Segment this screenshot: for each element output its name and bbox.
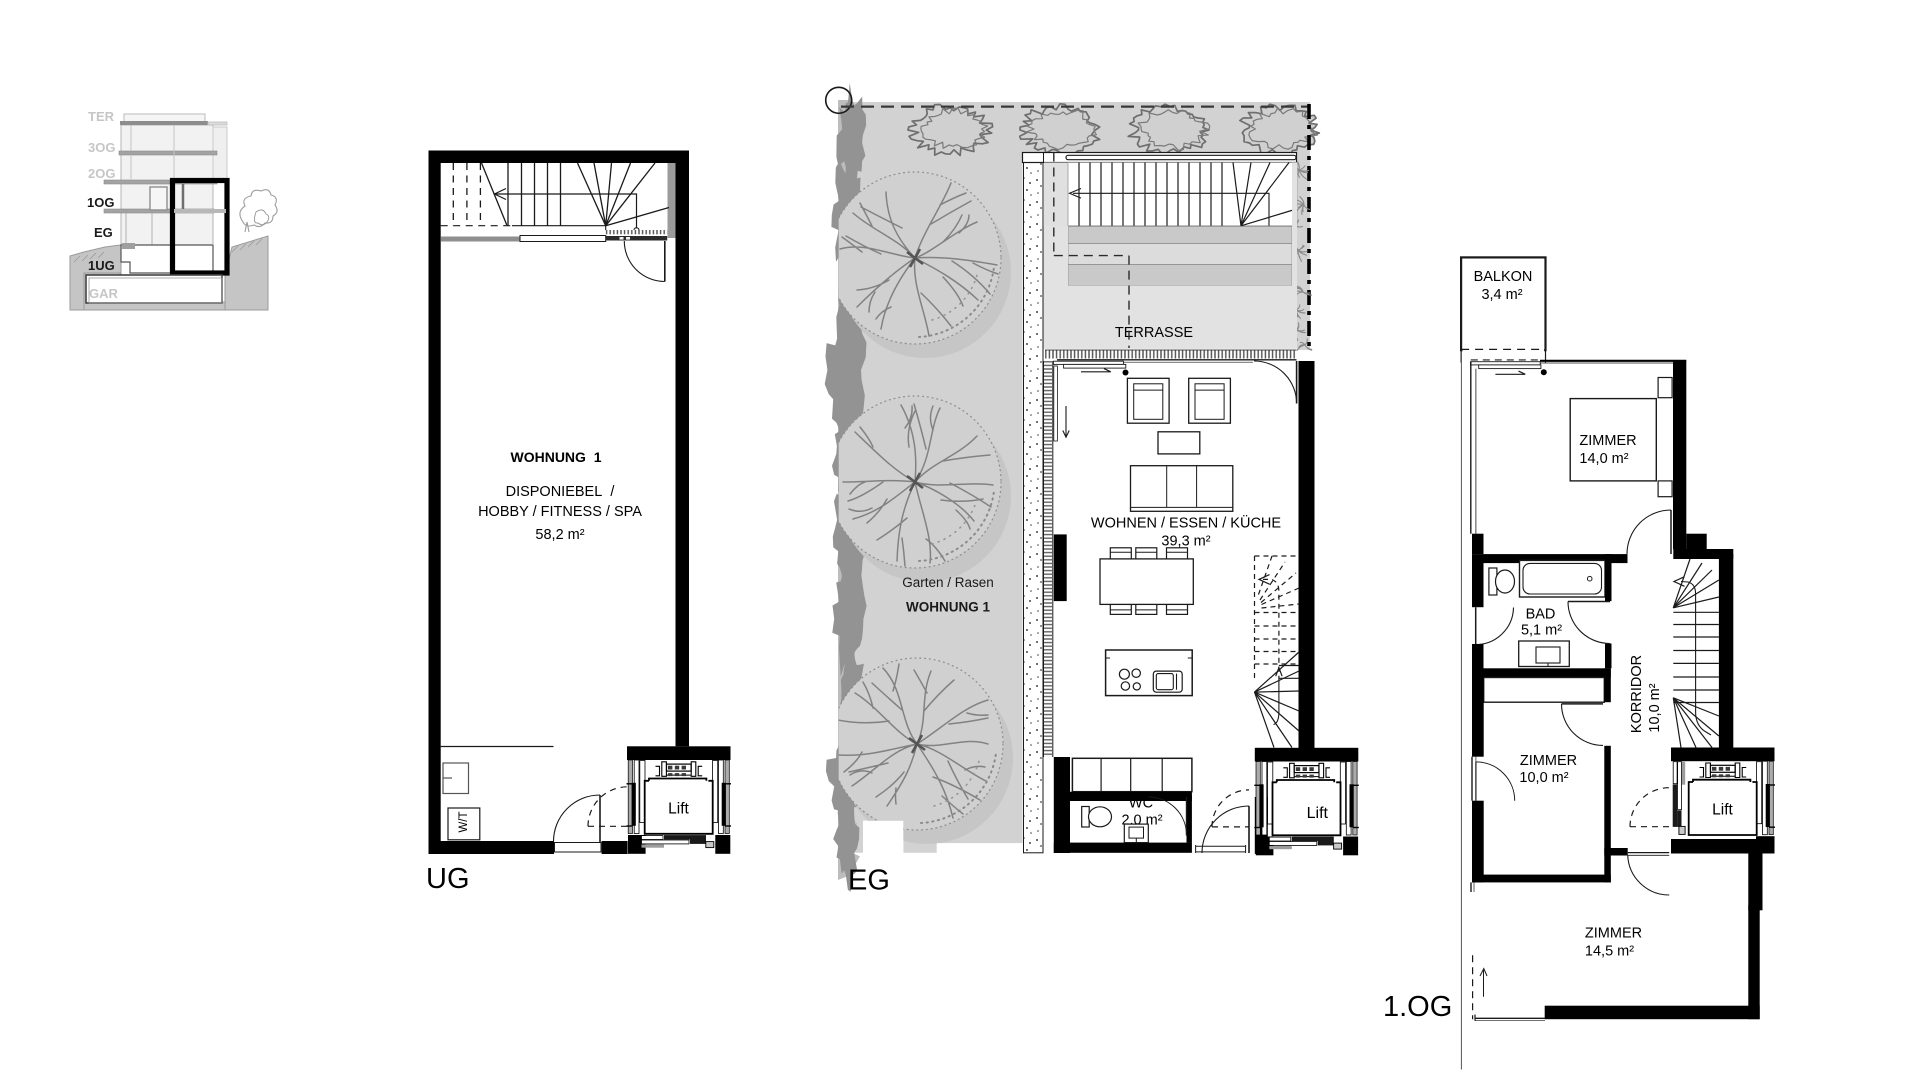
svg-text:DISPONIEBEL /: DISPONIEBEL / (506, 484, 616, 500)
svg-text:39,3 m²: 39,3 m² (1161, 534, 1210, 550)
svg-text:ZIMMER: ZIMMER (1579, 433, 1636, 449)
svg-text:10,0 m²: 10,0 m² (1519, 770, 1568, 786)
svg-text:HOBBY / FITNESS / SPA: HOBBY / FITNESS / SPA (478, 504, 642, 520)
svg-text:58,2 m²: 58,2 m² (535, 527, 584, 543)
svg-text:5,1 m²: 5,1 m² (1521, 623, 1562, 639)
svg-text:ZIMMER: ZIMMER (1585, 926, 1642, 942)
svg-text:WOHNUNG 1: WOHNUNG 1 (511, 449, 602, 465)
svg-text:W/T: W/T (458, 811, 470, 832)
svg-text:1OG: 1OG (87, 195, 114, 210)
svg-text:EG: EG (848, 865, 890, 897)
svg-text:10,0 m²: 10,0 m² (1647, 683, 1663, 732)
svg-text:ZIMMER: ZIMMER (1520, 753, 1577, 769)
svg-text:TER: TER (88, 109, 115, 124)
svg-text:3OG: 3OG (88, 140, 115, 155)
svg-text:2OG: 2OG (88, 166, 115, 181)
svg-text:BAD: BAD (1526, 607, 1556, 623)
svg-text:14,5 m²: 14,5 m² (1585, 944, 1634, 960)
svg-text:KORRIDOR: KORRIDOR (1629, 655, 1645, 733)
svg-text:Lift: Lift (668, 801, 689, 818)
svg-text:3,4 m²: 3,4 m² (1481, 287, 1522, 303)
svg-text:UG: UG (426, 863, 470, 895)
svg-text:1.OG: 1.OG (1383, 991, 1452, 1023)
svg-text:GAR: GAR (89, 286, 119, 301)
svg-text:WOHNEN / ESSEN / KÜCHE: WOHNEN / ESSEN / KÜCHE (1091, 514, 1281, 532)
svg-text:Lift: Lift (1712, 802, 1733, 819)
svg-text:EG: EG (94, 225, 113, 240)
svg-text:Garten / Rasen: Garten / Rasen (902, 575, 994, 590)
svg-text:1UG: 1UG (88, 258, 115, 273)
svg-text:WC: WC (1129, 796, 1153, 812)
svg-text:BALKON: BALKON (1474, 269, 1533, 285)
svg-text:14,0 m²: 14,0 m² (1579, 451, 1628, 467)
svg-text:TERRASSE: TERRASSE (1115, 325, 1193, 341)
svg-text:Lift: Lift (1307, 805, 1329, 822)
svg-text:WOHNUNG 1: WOHNUNG 1 (906, 600, 990, 615)
